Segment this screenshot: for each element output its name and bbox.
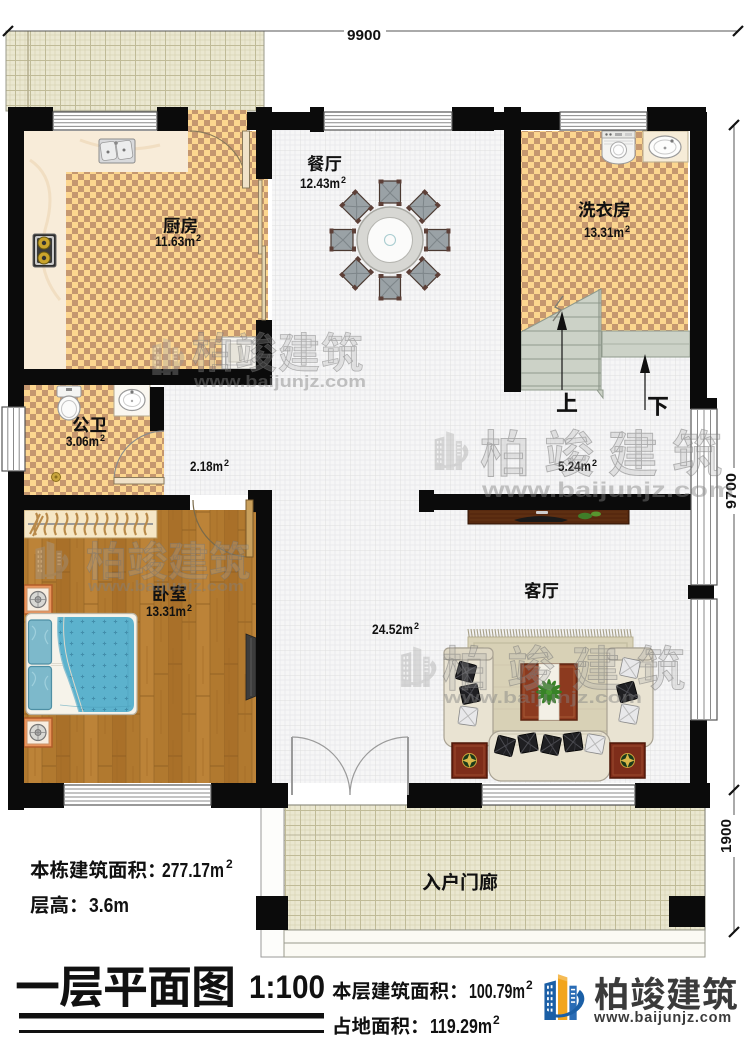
- svg-text:2: 2: [187, 603, 192, 613]
- svg-text:www.baijunjz.com: www.baijunjz.com: [87, 579, 244, 595]
- svg-text:2: 2: [625, 224, 630, 234]
- svg-text:1900: 1900: [718, 819, 735, 853]
- svg-text:www.baijunjz.com: www.baijunjz.com: [481, 479, 734, 502]
- svg-text:2: 2: [100, 433, 105, 443]
- svg-text:2: 2: [493, 1013, 500, 1027]
- svg-text:2: 2: [526, 978, 533, 992]
- svg-text:119.29m: 119.29m: [430, 1016, 492, 1038]
- svg-text:13.31m: 13.31m: [584, 225, 624, 240]
- svg-text:9900: 9900: [347, 27, 381, 44]
- svg-text:277.17m: 277.17m: [162, 860, 224, 882]
- svg-text:24.52m: 24.52m: [372, 622, 413, 637]
- svg-text:2: 2: [341, 175, 346, 185]
- svg-text:2: 2: [224, 458, 229, 468]
- svg-text:2: 2: [226, 857, 233, 871]
- svg-text:www.baijunjz.com: www.baijunjz.com: [593, 1010, 732, 1026]
- svg-text:2.18m: 2.18m: [190, 459, 223, 474]
- svg-text:2: 2: [196, 233, 201, 243]
- svg-text:2: 2: [414, 621, 419, 631]
- svg-text:3.06m: 3.06m: [66, 434, 99, 449]
- svg-text:11.63m: 11.63m: [155, 234, 195, 249]
- svg-text:100.79m: 100.79m: [469, 981, 525, 1003]
- svg-text:2: 2: [592, 458, 597, 468]
- svg-text:1:100: 1:100: [249, 969, 325, 1005]
- svg-text:www.baijunjz.com: www.baijunjz.com: [193, 372, 366, 391]
- svg-text:12.43m: 12.43m: [300, 176, 340, 191]
- svg-text:www.baijunjz.com: www.baijunjz.com: [443, 688, 642, 707]
- svg-text:3.6m: 3.6m: [89, 895, 129, 917]
- svg-text:13.31m: 13.31m: [146, 604, 186, 619]
